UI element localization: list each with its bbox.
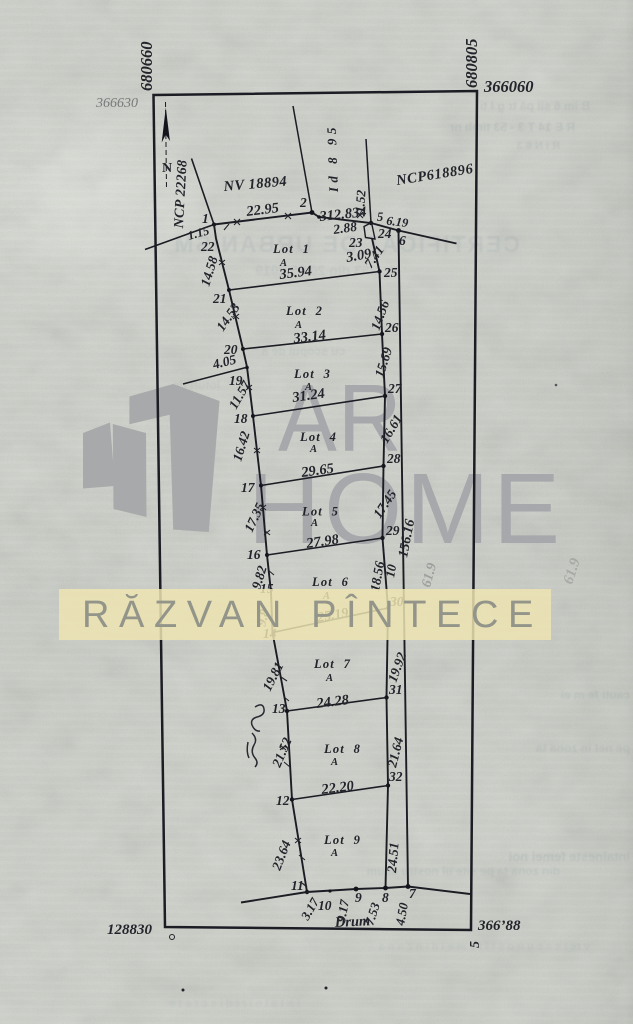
svg-text:156.16: 156.16 — [396, 518, 418, 559]
svg-text:9: 9 — [355, 890, 362, 905]
svg-text:128830: 128830 — [107, 922, 153, 938]
svg-text:11: 11 — [291, 878, 304, 893]
svg-text:N: N — [162, 161, 172, 176]
svg-text:Lot 1: Lot 1 — [272, 242, 310, 256]
svg-text:18: 18 — [234, 411, 248, 426]
svg-text:17: 17 — [241, 480, 256, 495]
svg-text:Lot 9: Lot 9 — [323, 833, 361, 847]
svg-text:366060: 366060 — [483, 77, 534, 96]
svg-text:680660: 680660 — [137, 42, 156, 92]
svg-text:22: 22 — [200, 239, 215, 254]
svg-text:Id 8 95: Id 8 95 — [324, 123, 341, 194]
svg-text:A: A — [294, 320, 302, 331]
svg-text:27: 27 — [387, 381, 403, 396]
svg-text:17.45: 17.45 — [370, 487, 400, 521]
svg-text:Lot 6: Lot 6 — [311, 575, 349, 589]
svg-text:Drum: Drum — [333, 913, 370, 931]
svg-text:2: 2 — [299, 195, 307, 210]
svg-text:25: 25 — [383, 265, 398, 280]
svg-text:A: A — [310, 518, 318, 529]
svg-text:Lot 3: Lot 3 — [293, 367, 331, 381]
svg-text:22.20: 22.20 — [320, 778, 355, 798]
svg-text:61.9: 61.9 — [561, 556, 584, 586]
svg-text:26: 26 — [384, 320, 399, 335]
svg-text:24.28: 24.28 — [315, 692, 351, 712]
svg-text:16: 16 — [247, 547, 261, 562]
svg-text:A: A — [304, 382, 312, 393]
svg-text:A: A — [279, 258, 287, 269]
svg-text:366630: 366630 — [95, 96, 138, 111]
svg-text:5: 5 — [468, 941, 483, 948]
svg-text:15.69: 15.69 — [372, 345, 396, 379]
svg-text:21: 21 — [212, 291, 227, 306]
svg-text:24.51: 24.51 — [384, 842, 402, 875]
svg-text:24: 24 — [377, 226, 392, 241]
svg-text:A: A — [325, 673, 333, 684]
svg-text:6: 6 — [399, 233, 406, 248]
svg-text:680805: 680805 — [462, 39, 481, 89]
svg-text:32: 32 — [388, 769, 403, 784]
svg-text:NV 18894: NV 18894 — [222, 173, 288, 195]
svg-text:A: A — [309, 444, 317, 455]
svg-text:A: A — [330, 848, 338, 859]
svg-text:4.50: 4.50 — [392, 901, 411, 927]
svg-text:NCP 22268: NCP 22268 — [172, 159, 191, 229]
svg-text:12: 12 — [276, 793, 290, 808]
svg-text:16.42: 16.42 — [230, 429, 253, 463]
svg-text:NCP618896: NCP618896 — [394, 161, 475, 189]
svg-text:Lot 7: Lot 7 — [313, 657, 351, 671]
svg-text:4.05: 4.05 — [210, 352, 238, 373]
svg-text:10: 10 — [382, 563, 399, 579]
svg-text:366’88: 366’88 — [477, 918, 521, 934]
svg-text:31: 31 — [388, 682, 403, 697]
svg-text:61.9: 61.9 — [419, 561, 440, 589]
svg-text:A: A — [330, 757, 338, 768]
svg-text:28: 28 — [386, 451, 401, 466]
svg-text:Lot 4: Lot 4 — [299, 430, 337, 444]
svg-text:27.98: 27.98 — [304, 531, 340, 552]
svg-text:13: 13 — [272, 701, 286, 716]
svg-text:14.58: 14.58 — [198, 254, 221, 288]
svg-text:Lot 2: Lot 2 — [285, 304, 323, 318]
svg-text:23.64: 23.64 — [268, 838, 293, 873]
svg-text:8: 8 — [382, 890, 389, 905]
svg-text:5: 5 — [377, 210, 383, 224]
svg-text:Lot 8: Lot 8 — [323, 742, 361, 756]
svg-text:Lot 5: Lot 5 — [301, 505, 339, 519]
svg-text:29.65: 29.65 — [299, 461, 335, 482]
svg-text:29: 29 — [385, 523, 400, 538]
